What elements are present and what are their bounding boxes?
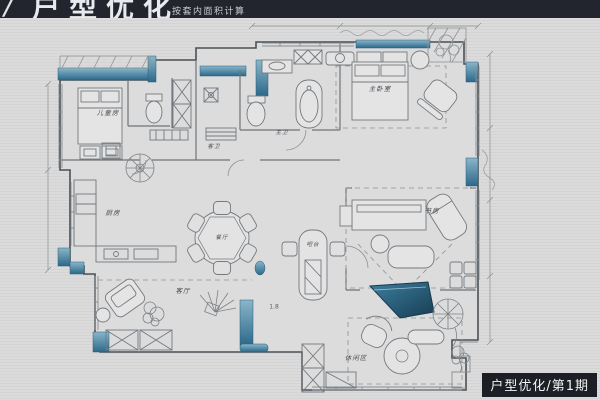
room-label-kids: 儿童房 xyxy=(97,107,120,117)
phase-badge-text: 户型优化/第1期 xyxy=(490,379,589,394)
room-label-dining: 餐厅 xyxy=(215,233,228,241)
kids-bed xyxy=(78,88,122,159)
living-side-table xyxy=(96,308,110,322)
phase-badge: 户型优化/第1期 xyxy=(482,373,597,397)
kids-bath-toilet xyxy=(146,94,162,123)
floor-plan-canvas xyxy=(0,0,600,400)
room-label-bar: 吧台 xyxy=(306,240,319,248)
room-label-guest-bath: 客卫 xyxy=(207,142,220,150)
room-label-kitchen: 厨房 xyxy=(106,207,121,217)
room-label-master-bath: 主卫 xyxy=(275,128,288,136)
room-label-master-bedroom: 主卧室 xyxy=(369,83,392,93)
room-label-study: 书房 xyxy=(425,205,440,215)
drapery-scribble xyxy=(482,150,495,190)
balcony-top-left xyxy=(60,56,150,68)
hall-plant xyxy=(126,154,154,182)
height-note: 1.8 xyxy=(269,304,279,311)
title-bar: / 户型优化 按套内面积计算 xyxy=(0,0,600,18)
room-label-living: 客厅 xyxy=(176,285,191,295)
floor-plan-area: 儿童房 客卫 主卫 主卧室 厨房 餐厅 吧台 书房 客厅 休闲区 1.8 xyxy=(0,0,600,400)
curtain-wave xyxy=(340,31,424,36)
room-label-leisure: 休闲区 xyxy=(345,352,368,362)
page-subtitle: 按套内面积计算 xyxy=(172,4,246,17)
leisure-bench xyxy=(408,330,444,344)
study-desk xyxy=(340,200,426,230)
logo-slash-icon: / xyxy=(4,0,13,18)
page-title: 户型优化 xyxy=(32,0,180,18)
